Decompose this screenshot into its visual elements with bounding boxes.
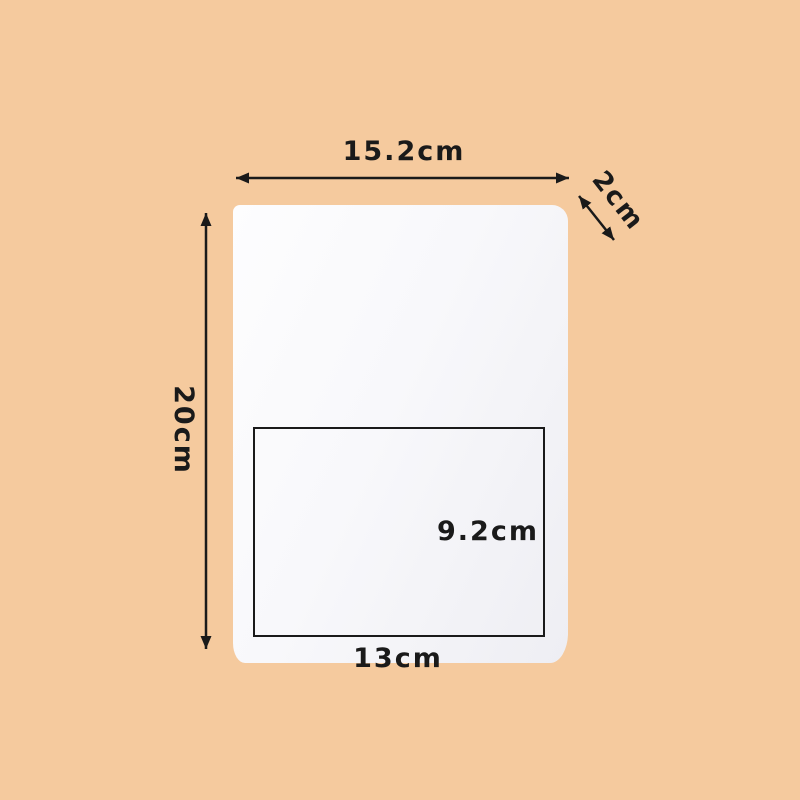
width-label: 15.2cm — [304, 136, 504, 167]
height-label: 20cm — [163, 380, 203, 480]
inner-width-label: 13cm — [328, 643, 468, 674]
thickness-label: 2cm — [580, 159, 655, 244]
dimension-diagram: 15.2cm 2cm 20cm 9.2cm 13cm — [0, 0, 800, 800]
inner-height-label: 9.2cm — [423, 516, 553, 548]
